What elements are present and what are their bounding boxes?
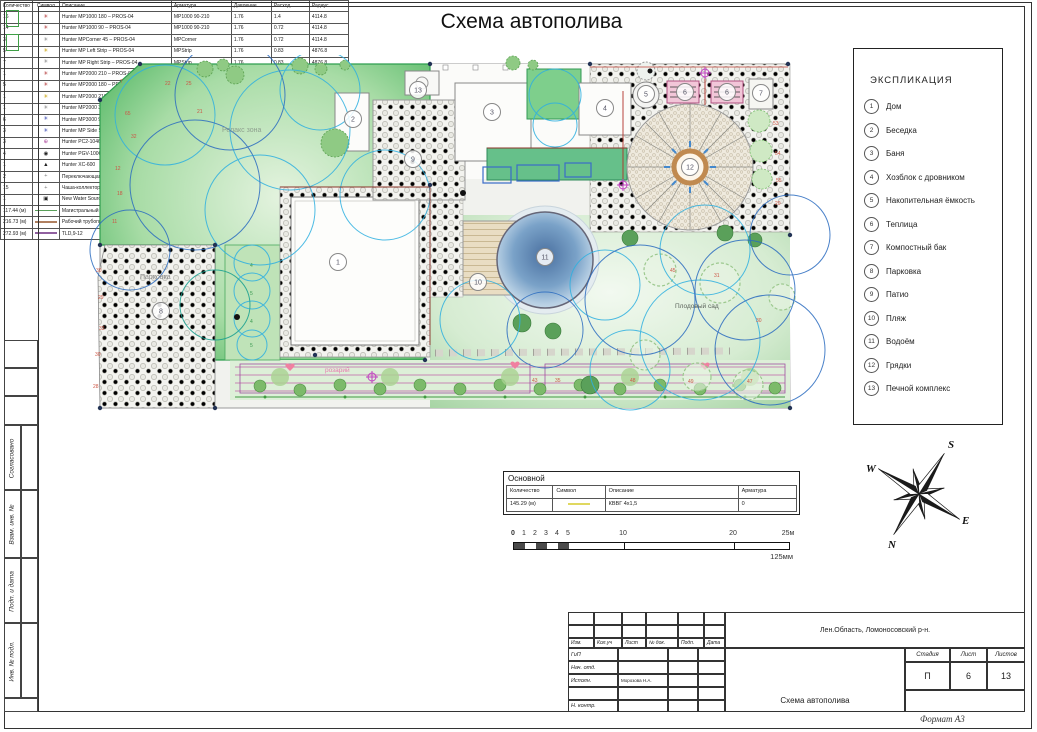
explication-item: 7Компостный бак <box>864 241 1002 254</box>
plan-marker-3: 3 <box>484 104 501 121</box>
explication-item: 9Патио <box>864 288 1002 301</box>
org-cell <box>905 690 1025 712</box>
corner-mark-2 <box>6 34 19 51</box>
document-title: Схема автополива <box>725 648 905 712</box>
plant-number-label: 30 <box>756 318 762 324</box>
svg-text:3: 3 <box>490 110 494 117</box>
compass-west: W <box>866 463 877 475</box>
scale-tick: 4 <box>555 530 559 537</box>
explication-item: 8Парковка <box>864 265 1002 278</box>
main-cable-row: 145.29 (м) КВВГ 4х1,5 0 <box>507 499 797 512</box>
title-block-cell <box>618 648 668 661</box>
title-block-cell <box>678 625 704 638</box>
title-block-cell <box>594 612 622 625</box>
explication-item: 3Баня <box>864 147 1002 160</box>
explication-item-label: Водоём <box>886 337 915 346</box>
svg-text:6: 6 <box>725 90 729 97</box>
plant-number-label: 65 <box>125 111 131 117</box>
compass-rose: S W E N <box>862 432 977 557</box>
explication-item-label: Хозблок с дровником <box>886 173 965 182</box>
change-table: Изм.Кол.учЛист№ док.Подп.ДатаГиПНач. отд… <box>568 612 725 712</box>
plant-number-label: 18 <box>117 191 123 197</box>
stage-label: Стадия <box>905 648 950 662</box>
explication-item: 1Дом <box>864 100 1002 113</box>
explication-item-number: 8 <box>864 264 879 279</box>
house <box>291 197 419 345</box>
title-block-cell: Нач. отд. <box>568 661 618 674</box>
title-block-cell <box>622 625 646 638</box>
explication-item: 5Накопительная ёмкость <box>864 194 1002 207</box>
sheet-label: Лист <box>950 648 987 662</box>
title-block-cell: Дата <box>704 638 725 648</box>
scale-bar: 012345102025м 125мм <box>513 530 813 570</box>
title-block-cell <box>668 648 698 661</box>
plant-number-label: 5 <box>250 291 253 297</box>
scale-sub-label: 125мм <box>738 552 793 561</box>
plant-number-label: 47 <box>747 379 753 385</box>
stamp-label-inv-podl: Инв. № подл. <box>8 628 19 694</box>
explication-item-number: 6 <box>864 217 879 232</box>
plant-number-label: 5 <box>250 343 253 349</box>
title-block-cell <box>704 612 725 625</box>
plan-marker-9: 9 <box>405 151 422 168</box>
title-block-cell <box>668 687 698 700</box>
explication-item: 12Грядки <box>864 359 1002 372</box>
plan-area-label: Релакс зона <box>222 127 261 134</box>
plan-marker-1: 1 <box>330 254 347 271</box>
explication-item-label: Пляж <box>886 314 906 323</box>
plant-number-label: 12 <box>115 166 121 172</box>
plan-marker-12: 12 <box>682 159 699 176</box>
stamp-cell <box>4 368 38 396</box>
corner-mark-1 <box>6 10 19 27</box>
explication-item-number: 12 <box>864 358 879 373</box>
plan-marker-11: 11 <box>537 249 554 266</box>
title-block-cell <box>704 625 725 638</box>
title-block-cell: Исполн. <box>568 674 618 687</box>
line-yellow-icon <box>568 503 590 505</box>
scale-tick: 0 <box>511 530 515 537</box>
plant-number-label: 54 <box>775 151 781 157</box>
plant-number-label: 33 <box>99 326 105 332</box>
title-block-cell: Подп. <box>678 638 704 648</box>
stage-value: П <box>905 662 950 690</box>
svg-text:13: 13 <box>414 88 422 95</box>
plant-number-label: 31 <box>714 273 720 279</box>
title-block-cell <box>698 687 725 700</box>
sheets-value: 13 <box>987 662 1025 690</box>
svg-text:8: 8 <box>159 309 163 316</box>
explication-item-number: 7 <box>864 240 879 255</box>
explication-item-number: 13 <box>864 381 879 396</box>
title-block-cell <box>668 700 698 712</box>
stamp-cell <box>21 490 38 558</box>
plant-number-label: 30 <box>95 352 101 358</box>
title-block-cell: Морозова Н.А. <box>618 674 668 687</box>
explication-item-label: Печной комплекс <box>886 384 950 393</box>
svg-text:2: 2 <box>351 117 355 124</box>
project-region: Лен.Область, Ломоносовский р-н. <box>725 612 1025 648</box>
plant-number-label: 55 <box>776 178 782 184</box>
explication-item-number: 3 <box>864 146 879 161</box>
svg-text:1: 1 <box>336 260 340 267</box>
explication-item-number: 1 <box>864 99 879 114</box>
title-block-cell: ГиП <box>568 648 618 661</box>
svg-text:9: 9 <box>411 157 415 164</box>
plant-number-label: 48 <box>630 378 636 384</box>
svg-text:5: 5 <box>644 92 648 99</box>
plan-marker-6: 6 <box>719 84 736 101</box>
path-to-pond <box>430 187 463 297</box>
title-block-cell <box>568 625 594 638</box>
stamp-label-soglasovano: Согласовано <box>8 425 19 491</box>
stamp-cell <box>4 340 38 368</box>
plant-number-label: 20 <box>775 201 781 207</box>
plan-marker-10: 10 <box>470 274 487 291</box>
plan-area-label: Плодовый сад <box>675 302 719 310</box>
plan-area-label: розарий <box>325 366 350 374</box>
scale-tick: 10 <box>619 530 627 537</box>
explication-item-number: 11 <box>864 334 879 349</box>
explication-item-label: Патио <box>886 290 909 299</box>
stamp-label-podp-data: Подп. и дата <box>8 558 19 624</box>
title-block-cell: Изм. <box>568 638 594 648</box>
title-block-cell <box>668 661 698 674</box>
svg-text:10: 10 <box>474 280 482 287</box>
explication-item-label: Дом <box>886 102 901 111</box>
explication-item: 13Печной комплекс <box>864 382 1002 395</box>
explication-item-number: 2 <box>864 123 879 138</box>
svg-text:7: 7 <box>759 91 763 98</box>
plant-number-label: 30 <box>96 268 102 274</box>
explication-item: 4Хозблок с дровником <box>864 171 1002 184</box>
explication-item-label: Парковка <box>886 267 921 276</box>
plant-number-label: 11 <box>112 219 117 225</box>
plant-number-label: 32 <box>131 134 137 140</box>
plant-number-label: 7 <box>120 79 123 85</box>
stamp-cell <box>4 698 38 712</box>
main-cable-symbol <box>553 499 605 512</box>
scale-tick: 3 <box>544 530 548 537</box>
svg-text:12: 12 <box>686 165 694 172</box>
scale-tick: 1 <box>522 530 526 537</box>
plant-number-label: 4 <box>250 319 253 325</box>
title-block-cell: № док. <box>646 638 678 648</box>
page-title: Схема автополива <box>38 10 1025 34</box>
svg-text:11: 11 <box>541 255 548 262</box>
plan-marker-6: 6 <box>677 84 694 101</box>
explication-item-number: 9 <box>864 287 879 302</box>
explication-item-label: Беседка <box>886 126 917 135</box>
compass-north: N <box>887 539 897 551</box>
plan-marker-2: 2 <box>345 111 362 128</box>
plant-number-label: 29 <box>98 295 104 301</box>
explication-list: 1Дом2Беседка3Баня4Хозблок с дровником5На… <box>854 100 1002 395</box>
title-block-cell: Н. контр. <box>568 700 618 712</box>
compass-south: S <box>948 439 954 451</box>
plant-number-label: 25 <box>186 81 192 87</box>
plan-marker-4: 4 <box>597 100 614 117</box>
title-block-cell <box>698 674 725 687</box>
scale-bar-strip <box>513 542 790 550</box>
plant-number-label: 53 <box>773 121 779 127</box>
sheet-value: 6 <box>950 662 987 690</box>
compass-east: E <box>961 515 969 527</box>
explication-item-label: Теплица <box>886 220 917 229</box>
site-plan: Релакс зонаПарковкарозарийПлодовый сад72… <box>85 55 845 425</box>
title-block-cell <box>618 700 668 712</box>
explication-item: 6Теплица <box>864 218 1002 231</box>
title-block-cell <box>698 661 725 674</box>
title-block-cell <box>698 700 725 712</box>
plant-number-label: 4 <box>250 263 253 269</box>
plant-number-label: 21 <box>197 109 203 115</box>
explication-item-number: 5 <box>864 193 879 208</box>
title-block-cell <box>646 625 678 638</box>
plan-marker-5: 5 <box>638 86 655 103</box>
title-block: Изм.Кол.учЛист№ док.Подп.ДатаГиПНач. отд… <box>568 612 1025 712</box>
scale-tick: 5 <box>566 530 570 537</box>
sheets-label: Листов <box>987 648 1025 662</box>
stamp-cell <box>4 396 38 425</box>
plant-number-label: 22 <box>165 81 171 87</box>
explication-title: ЭКСПЛИКАЦИЯ <box>870 75 1002 86</box>
raised-bed-2 <box>487 148 627 180</box>
title-block-cell: Лист <box>622 638 646 648</box>
explication-item-label: Баня <box>886 149 904 158</box>
plant-number-label: 43 <box>532 378 538 384</box>
plan-marker-8: 8 <box>153 303 170 320</box>
title-block-cell <box>568 687 618 700</box>
explication-item-number: 4 <box>864 170 879 185</box>
title-block-cell <box>568 612 594 625</box>
parking-area <box>98 245 215 408</box>
scale-tick: 25м <box>782 530 795 537</box>
plan-marker-13: 13 <box>410 82 427 99</box>
scale-tick: 2 <box>533 530 537 537</box>
title-block-cell <box>678 612 704 625</box>
title-block-cell <box>594 625 622 638</box>
title-block-cell: Кол.уч <box>594 638 622 648</box>
plant-number-label: 49 <box>688 379 694 385</box>
stamp-cell <box>21 558 38 623</box>
plan-marker-7: 7 <box>753 85 770 102</box>
plant-number-label: 45 <box>670 268 676 274</box>
explication-item: 2Беседка <box>864 124 1002 137</box>
title-block-cell <box>698 648 725 661</box>
title-block-cell <box>618 687 668 700</box>
title-block-cell <box>622 612 646 625</box>
stamp-cell <box>21 425 38 490</box>
stamp-cell <box>21 623 38 698</box>
svg-text:6: 6 <box>683 90 687 97</box>
explication-panel: ЭКСПЛИКАЦИЯ 1Дом2Беседка3Баня4Хозблок с … <box>853 48 1003 425</box>
main-cable-table: Количество Символ Описание Арматура 145.… <box>506 485 797 512</box>
explication-item-number: 10 <box>864 311 879 326</box>
svg-text:4: 4 <box>603 106 607 113</box>
plant-number-label: 35 <box>555 378 561 384</box>
drawing-sheet: Схема автополива Согласовано Взам. инв. … <box>0 0 1037 732</box>
title-block-cell <box>646 612 678 625</box>
explication-item: 11Водоём <box>864 335 1002 348</box>
plan-area-label: Парковка <box>140 274 171 281</box>
plant-number-label: 28 <box>93 384 99 390</box>
title-block-cell <box>668 674 698 687</box>
main-cable-title: Основной <box>508 474 797 483</box>
explication-item-label: Компостный бак <box>886 243 946 252</box>
scale-tick: 20 <box>729 530 737 537</box>
explication-item: 10Пляж <box>864 312 1002 325</box>
explication-item-label: Грядки <box>886 361 911 370</box>
stamp-label-vzam-inv: Взам. инв. № <box>8 492 19 558</box>
format-label: Формат А3 <box>920 714 1020 724</box>
title-block-cell <box>618 661 668 674</box>
explication-item-label: Накопительная ёмкость <box>886 196 975 205</box>
main-cable-panel: Основной Количество Символ Описание Арма… <box>503 471 800 515</box>
